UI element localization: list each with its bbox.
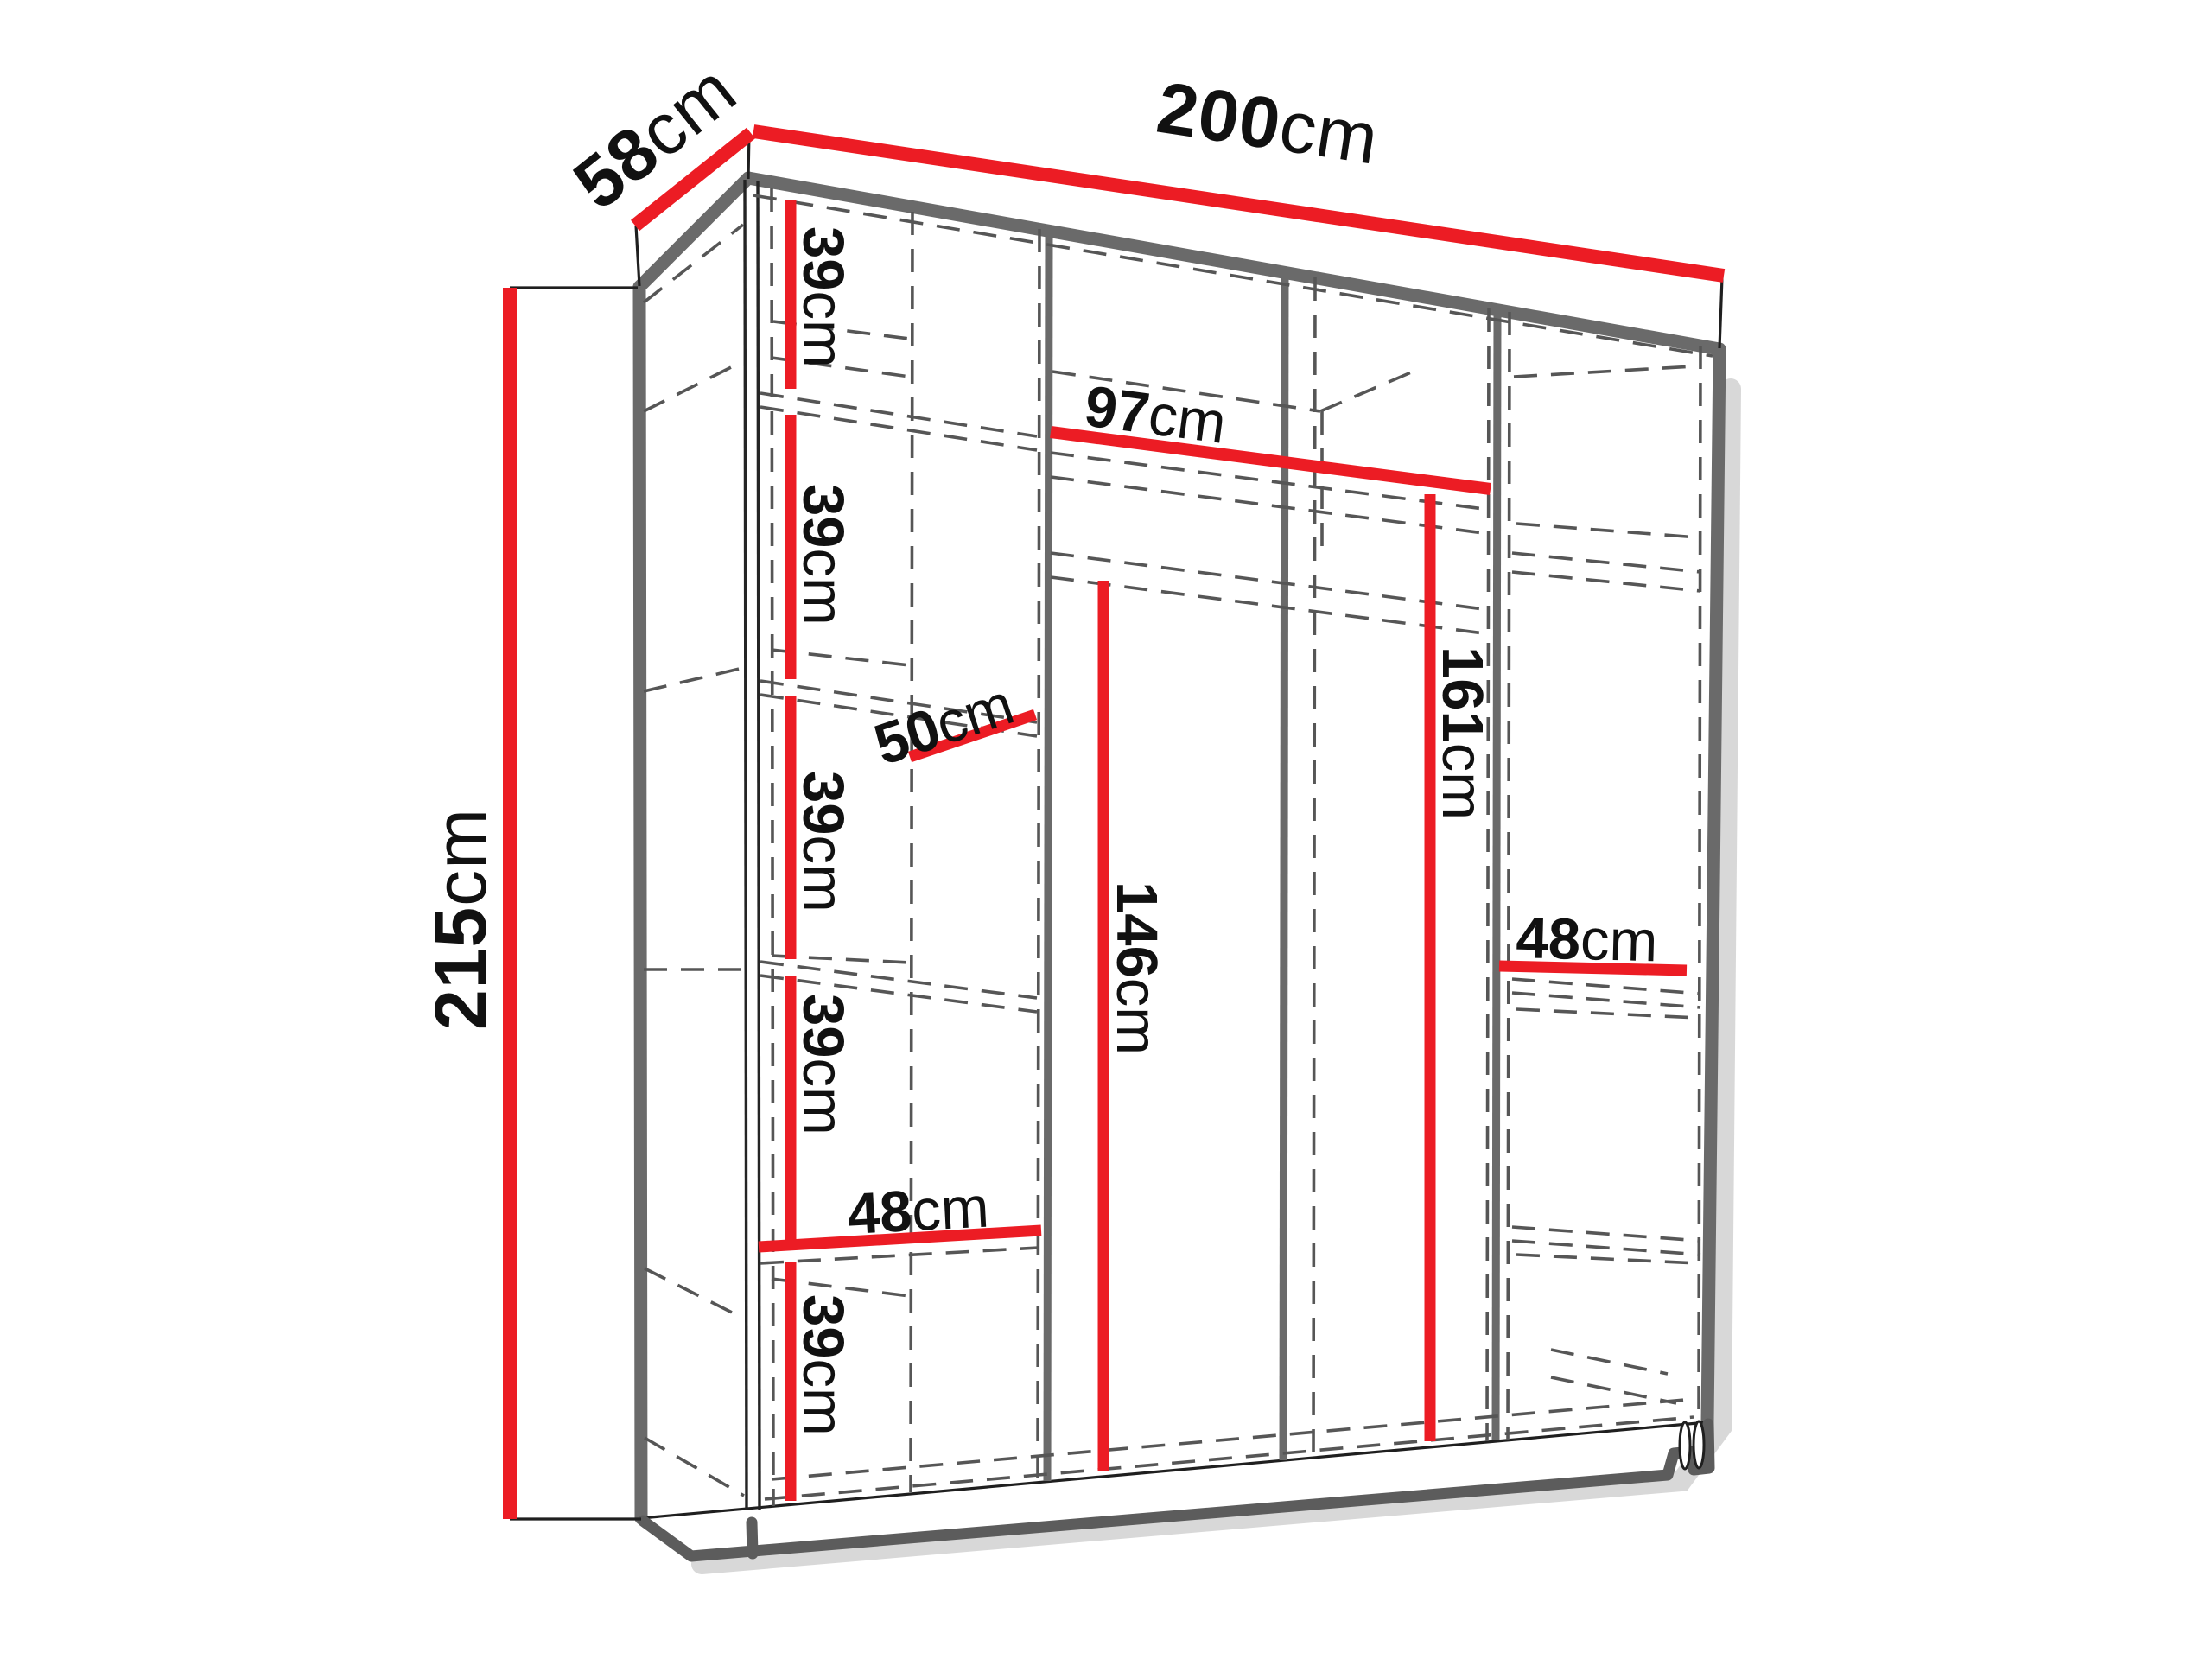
label-shelf-gap-2-value: 39 bbox=[791, 484, 855, 549]
foot-lens-2 bbox=[1694, 1421, 1704, 1468]
partition-3-front bbox=[1283, 272, 1285, 1460]
label-inner-height-mid-unit: cm bbox=[1104, 978, 1169, 1055]
foot-left-partition bbox=[752, 1522, 753, 1554]
label-inner-height-right: 161cm bbox=[1430, 646, 1495, 820]
plinth-outline bbox=[643, 1424, 1709, 1556]
label-shelf-gap-1-value: 39 bbox=[791, 226, 855, 291]
label-right-width: 48cm bbox=[1516, 906, 1659, 974]
label-inner-height-right-value: 161 bbox=[1430, 646, 1495, 743]
label-shelf-gap-2-unit: cm bbox=[791, 549, 855, 626]
label-left-width-value: 48 bbox=[846, 1179, 913, 1247]
label-shelf-depth: 50cm bbox=[867, 671, 1021, 778]
label-left-width: 48cm bbox=[846, 1175, 991, 1247]
label-height-value: 215 bbox=[420, 906, 501, 1030]
left-strip-depth-diagonals bbox=[644, 225, 744, 1496]
label-shelf-gap-2: 39cm bbox=[791, 484, 855, 626]
label-left-width-unit: cm bbox=[910, 1175, 990, 1244]
label-inner-height-mid: 146cm bbox=[1104, 881, 1169, 1055]
label-width-value: 200 bbox=[1152, 67, 1286, 165]
label-shelf-gap-4-unit: cm bbox=[791, 1058, 855, 1135]
edge-left-front bbox=[639, 287, 641, 1518]
label-width: 200cm bbox=[1152, 67, 1383, 180]
partition-1-front-b bbox=[758, 181, 760, 1510]
edge-bottom-front bbox=[641, 1422, 1707, 1518]
label-height: 215cm bbox=[420, 808, 501, 1030]
label-shelf-gap-4-value: 39 bbox=[791, 994, 855, 1058]
dashed-verticals bbox=[772, 188, 1700, 1506]
partition-1-front-a bbox=[745, 180, 747, 1510]
dimension-lines bbox=[510, 131, 1724, 1519]
label-shelf-gap-1-unit: cm bbox=[791, 291, 855, 368]
label-shelf-gap-1: 39cm bbox=[791, 226, 855, 368]
label-shelf-gap-5: 39cm bbox=[791, 1294, 855, 1436]
label-shelf-gap-3-unit: cm bbox=[791, 836, 855, 912]
label-shelf-gap-3-value: 39 bbox=[791, 771, 855, 836]
label-shelf-gap-3: 39cm bbox=[791, 771, 855, 912]
label-width-unit: cm bbox=[1274, 85, 1384, 180]
foot-lens-1 bbox=[1680, 1422, 1690, 1469]
label-shelf-gap-5-value: 39 bbox=[791, 1294, 855, 1359]
partition-4-front bbox=[1496, 310, 1497, 1440]
right-shelves bbox=[1512, 524, 1700, 1263]
dim-ticks bbox=[510, 133, 1722, 1519]
label-shelf-gap-4: 39cm bbox=[791, 994, 855, 1135]
label-middle-width-value: 97 bbox=[1081, 373, 1154, 446]
label-middle-width-unit: cm bbox=[1145, 382, 1230, 456]
label-right-width-unit: cm bbox=[1580, 907, 1658, 974]
label-right-width-value: 48 bbox=[1516, 906, 1581, 972]
label-inner-height-mid-value: 146 bbox=[1104, 881, 1169, 978]
label-height-unit: cm bbox=[420, 808, 501, 906]
partition-2-front bbox=[1047, 231, 1049, 1481]
dashed-ceiling-front bbox=[753, 195, 1713, 356]
label-inner-height-right-unit: cm bbox=[1430, 743, 1495, 820]
wardrobe-dimension-diagram: 58cm 200cm 215cm 39cm 39cm 39cm 39cm 39c… bbox=[0, 0, 2212, 1659]
label-shelf-gap-5-unit: cm bbox=[791, 1359, 855, 1436]
bottom-right-depth-diagonals bbox=[1551, 1350, 1676, 1403]
